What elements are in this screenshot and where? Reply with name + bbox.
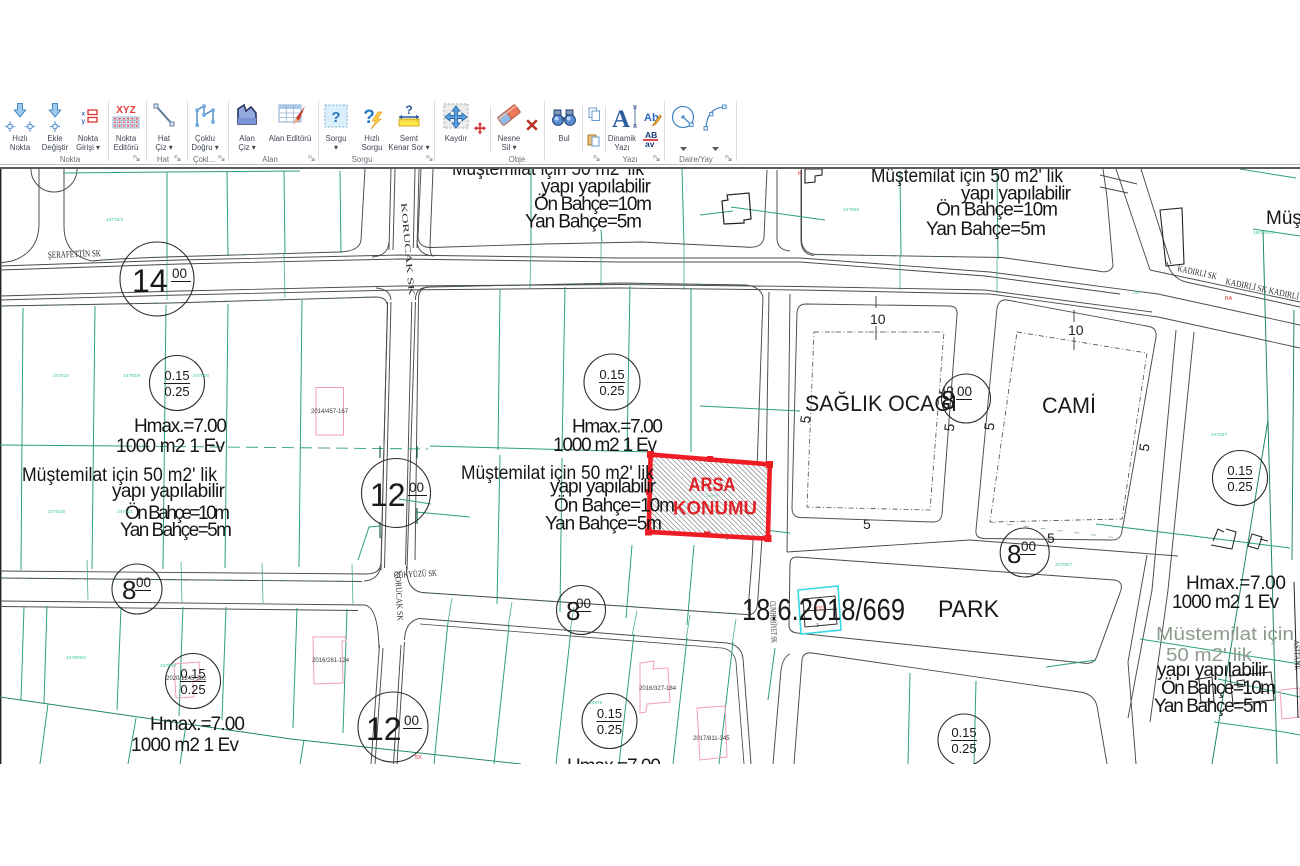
svg-text:Doğru ▾: Doğru ▾ (191, 143, 218, 152)
svg-text:Hızlı: Hızlı (12, 134, 28, 143)
svg-text:0.25: 0.25 (1227, 479, 1252, 494)
svg-text:5X: 5X (415, 755, 422, 761)
svg-text:Hat: Hat (157, 155, 170, 164)
svg-text:2017/811-345: 2017/811-345 (693, 736, 730, 742)
svg-text:12: 12 (366, 711, 402, 747)
svg-text:SAĞLIK OCAĞI: SAĞLIK OCAĞI (805, 391, 957, 416)
svg-text:24782/0: 24782/0 (48, 509, 66, 515)
svg-text:24780/5: 24780/5 (123, 373, 141, 379)
svg-text:?: ? (363, 107, 375, 128)
svg-text:5: 5 (1136, 442, 1153, 453)
svg-text:10: 10 (870, 311, 886, 327)
svg-text:2016/327-184: 2016/327-184 (639, 686, 677, 692)
svg-text:10: 10 (1068, 322, 1084, 338)
svg-text:Yan Bahçe=5m: Yan Bahçe=5m (525, 212, 642, 233)
svg-text:5: 5 (941, 422, 958, 432)
svg-text:ŞERAFETTİN SK: ŞERAFETTİN SK (48, 247, 101, 261)
svg-text:24786/7: 24786/7 (1055, 562, 1073, 568)
svg-text:KORUCAK SK: KORUCAK SK (399, 202, 417, 297)
svg-text:Daire/Yay: Daire/Yay (679, 155, 713, 164)
svg-text:Dinamik: Dinamik (608, 134, 636, 143)
svg-text:Çokl...: Çokl... (193, 155, 215, 164)
svg-text:BA: BA (1225, 296, 1233, 302)
svg-text:Alan Editörü: Alan Editörü (269, 134, 311, 143)
svg-text:GÖKYÜZÜ SK: GÖKYÜZÜ SK (394, 568, 438, 580)
svg-text:Sil ▾: Sil ▾ (502, 143, 517, 152)
svg-text:PARK: PARK (938, 596, 999, 623)
svg-text:KADIRLİ SK: KADIRLİ SK (1177, 263, 1219, 281)
svg-text:Hmax.=7.00: Hmax.=7.00 (134, 416, 227, 437)
svg-text:2020/1245-382: 2020/1245-382 (166, 676, 207, 682)
svg-text:00: 00 (1021, 539, 1036, 554)
svg-text:00: 00 (409, 480, 424, 495)
svg-text:Yan Bahçe=5m: Yan Bahçe=5m (545, 514, 662, 535)
svg-text:0.15: 0.15 (951, 725, 976, 740)
svg-text:Girişi ▾: Girişi ▾ (76, 143, 100, 152)
svg-text:247824: 247824 (53, 373, 69, 379)
svg-text:CAMİ: CAMİ (1042, 393, 1096, 418)
svg-text:1000 m2 1 Ev: 1000 m2 1 Ev (553, 435, 658, 456)
svg-text:0.15: 0.15 (164, 368, 189, 383)
svg-text:Çiz ▾: Çiz ▾ (155, 143, 172, 152)
svg-text:247: 247 (1133, 290, 1141, 296)
svg-text:Nokta: Nokta (10, 143, 31, 152)
svg-text:Obje: Obje (509, 155, 525, 164)
svg-text:Müstemilat için: Müstemilat için (1156, 623, 1294, 644)
svg-text:YY1: YY1 (815, 606, 825, 612)
svg-text:Ekle: Ekle (47, 134, 62, 143)
svg-text:XYZ: XYZ (116, 105, 135, 116)
svg-text:247868: 247868 (843, 207, 859, 213)
svg-text:0.15: 0.15 (599, 367, 624, 382)
svg-text:00: 00 (136, 575, 151, 590)
svg-text:0.15: 0.15 (1227, 463, 1252, 478)
svg-text:5: 5 (981, 421, 998, 431)
svg-text:249576: 249576 (704, 493, 718, 498)
svg-text:Yan Bahçe=5m: Yan Bahçe=5m (1154, 696, 1268, 717)
svg-text:KONUMU: KONUMU (673, 499, 757, 520)
svg-text:2016/281-124: 2016/281-124 (312, 658, 350, 664)
svg-text:1907/4/25: 1907/4/25 (1253, 230, 1275, 236)
svg-text:247821: 247821 (117, 509, 133, 515)
svg-text:0.25: 0.25 (180, 682, 205, 697)
svg-text:Yazı: Yazı (622, 155, 637, 164)
svg-text:0.25: 0.25 (599, 383, 624, 398)
svg-text:Kenar Sor ▾: Kenar Sor ▾ (388, 143, 429, 152)
svg-text:0.25: 0.25 (951, 741, 976, 756)
svg-text:Nokta: Nokta (60, 155, 81, 164)
svg-text:50 m2' lik: 50 m2' lik (1166, 644, 1253, 665)
svg-text:2014/457-167: 2014/457-167 (311, 409, 349, 415)
svg-text:Yan Bahçe=5m: Yan Bahçe=5m (926, 219, 1046, 240)
svg-text:x: x (82, 111, 86, 118)
svg-text:Hızlı: Hızlı (364, 134, 380, 143)
svg-text:Değiştir: Değiştir (42, 143, 69, 152)
svg-text:1000 m2 1 Ev: 1000 m2 1 Ev (116, 436, 226, 457)
svg-text:12: 12 (370, 477, 406, 513)
svg-text:Hat: Hat (158, 134, 171, 143)
svg-text:Hmax.=7.00: Hmax.=7.00 (1186, 573, 1286, 594)
svg-text:247809/6: 247809/6 (66, 655, 86, 661)
svg-text:yapı yapılabilir: yapı yapılabilir (112, 481, 226, 502)
svg-text:K: K (798, 171, 802, 177)
svg-text:0.25: 0.25 (597, 722, 622, 737)
svg-text:Nokta: Nokta (78, 134, 99, 143)
svg-text:Nokta: Nokta (116, 134, 137, 143)
svg-text:Yazı: Yazı (614, 143, 629, 152)
svg-text:ASİTANE: ASİTANE (1292, 640, 1300, 670)
svg-text:8: 8 (1007, 539, 1021, 569)
svg-text:Hmax.=7.00: Hmax.=7.00 (150, 714, 245, 735)
svg-text:247007: 247007 (1211, 432, 1227, 438)
svg-text:Alan: Alan (239, 134, 255, 143)
svg-text:00: 00 (576, 596, 591, 611)
svg-text:00: 00 (404, 713, 419, 728)
svg-text:Kaydır: Kaydır (445, 134, 468, 143)
svg-text:?: ? (331, 109, 340, 126)
svg-text:0.15: 0.15 (597, 706, 622, 721)
svg-text:5: 5 (1047, 530, 1055, 546)
svg-text:▾: ▾ (334, 143, 338, 152)
svg-text:14: 14 (132, 263, 168, 299)
svg-text:A: A (612, 106, 630, 133)
svg-text:Sorgu: Sorgu (362, 143, 383, 152)
svg-text:24776/3: 24776/3 (106, 217, 124, 223)
svg-text:Nesne: Nesne (498, 134, 521, 143)
svg-text:3: 3 (816, 623, 819, 629)
svg-text:Alan: Alan (262, 155, 278, 164)
svg-text:Hmax.=7.00: Hmax.=7.00 (567, 756, 661, 766)
svg-text:Sorgu: Sorgu (352, 155, 373, 164)
svg-text:Yan Bahçe=5m: Yan Bahçe=5m (120, 520, 232, 541)
svg-text:y: y (82, 118, 86, 125)
svg-text:CUMHURİYET SK: CUMHURİYET SK (768, 601, 779, 644)
svg-text:Semt: Semt (400, 134, 419, 143)
svg-text:5: 5 (863, 516, 871, 532)
svg-text:Bul: Bul (558, 134, 570, 143)
svg-text:00: 00 (957, 384, 972, 399)
svg-text:Editörü: Editörü (114, 143, 139, 152)
svg-text:8: 8 (122, 575, 136, 605)
svg-text:Sorgu: Sorgu (326, 134, 347, 143)
svg-text:?: ? (405, 103, 412, 117)
svg-text:Ön Bahçe=10m: Ön Bahçe=10m (936, 200, 1058, 221)
svg-text:KADIRLİ SK KADIRLİ: KADIRLİ SK KADIRLİ (1225, 276, 1300, 301)
svg-text:Müş: Müş (1266, 208, 1300, 229)
svg-text:247819: 247819 (160, 663, 176, 669)
svg-text:Çiz ▾: Çiz ▾ (238, 143, 255, 152)
svg-text:247806: 247806 (193, 373, 209, 379)
svg-text:1000 m2 1 Ev: 1000 m2 1 Ev (131, 735, 240, 756)
svg-text:24879: 24879 (589, 700, 603, 706)
svg-text:yapı yapılabilir: yapı yapılabilir (550, 477, 657, 498)
svg-text:0.25: 0.25 (164, 384, 189, 399)
svg-text:1000 m2 1 Ev: 1000 m2 1 Ev (1172, 592, 1280, 613)
svg-text:Çoklu: Çoklu (195, 134, 215, 143)
svg-text:00: 00 (172, 266, 187, 281)
